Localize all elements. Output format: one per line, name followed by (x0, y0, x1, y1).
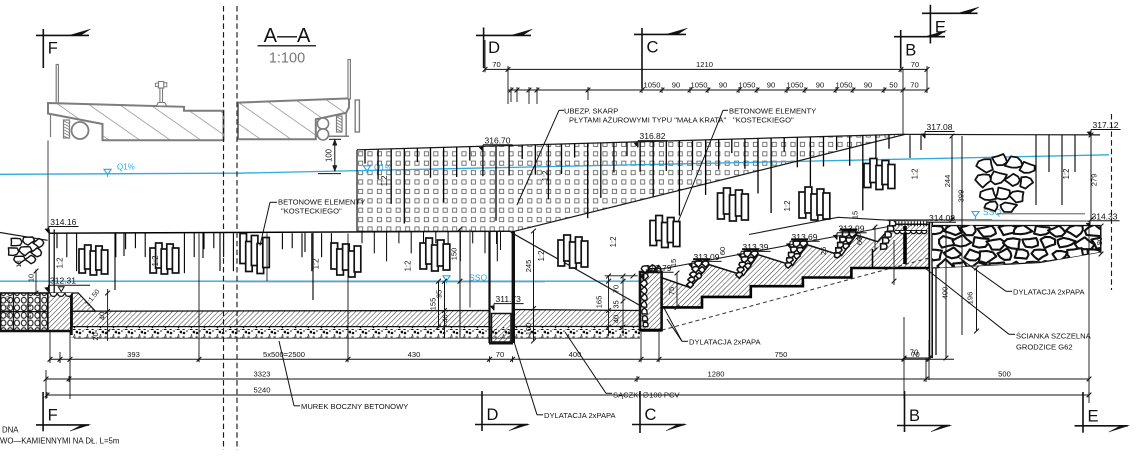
svg-text:1:2: 1:2 (56, 258, 65, 269)
svg-text:1050: 1050 (836, 81, 853, 90)
svg-text:18: 18 (16, 260, 23, 268)
svg-text:WO—KAMIENNYMI NA DŁ. L=5m: WO—KAMIENNYMI NA DŁ. L=5m (0, 437, 119, 446)
svg-text:E: E (935, 19, 946, 37)
svg-text:313.99: 313.99 (839, 223, 865, 233)
svg-text:314.08: 314.08 (929, 213, 955, 223)
svg-text:95: 95 (434, 290, 443, 298)
svg-text:1:2: 1:2 (151, 256, 160, 267)
svg-text:313.69: 313.69 (792, 232, 818, 242)
svg-text:312.79: 312.79 (646, 263, 672, 273)
svg-text:C: C (645, 406, 657, 424)
svg-text:1:2: 1:2 (541, 171, 550, 182)
svg-text:C: C (647, 39, 659, 57)
svg-text:E: E (1088, 408, 1099, 426)
svg-text:245: 245 (524, 260, 533, 273)
svg-text:1:2: 1:2 (609, 237, 618, 248)
svg-text:5x500=2500: 5x500=2500 (263, 350, 305, 359)
svg-text:5240: 5240 (254, 386, 271, 395)
svg-text:∅10-20: ∅10-20 (5, 296, 12, 318)
svg-text:35: 35 (612, 300, 621, 308)
svg-text:1:2: 1:2 (312, 259, 321, 270)
svg-text:1050: 1050 (739, 81, 756, 90)
svg-text:316.82: 316.82 (640, 131, 666, 141)
svg-text:314.33: 314.33 (1092, 211, 1118, 221)
svg-text:90: 90 (719, 81, 727, 90)
svg-text:1:2: 1:2 (1062, 169, 1071, 180)
svg-text:1:1.0: 1:1.0 (26, 304, 33, 319)
svg-text:90: 90 (672, 81, 680, 90)
svg-text:70: 70 (496, 350, 504, 359)
svg-text:B: B (909, 407, 920, 425)
svg-text:"KOSTECKIEGO": "KOSTECKIEGO" (281, 206, 342, 215)
svg-text:1:2: 1:2 (783, 201, 792, 212)
svg-text:100: 100 (524, 323, 533, 336)
svg-text:1:100: 1:100 (269, 51, 305, 67)
svg-text:393: 393 (127, 350, 140, 359)
svg-text:40: 40 (612, 315, 621, 323)
svg-text:1280: 1280 (708, 370, 725, 379)
svg-text:D: D (487, 406, 499, 424)
svg-text:1210: 1210 (696, 60, 713, 69)
svg-text:750: 750 (775, 350, 788, 359)
svg-text:DYLATACJA 2xPAPA: DYLATACJA 2xPAPA (544, 411, 617, 420)
svg-text:244: 244 (943, 175, 952, 188)
svg-text:1:2: 1:2 (380, 176, 389, 187)
svg-text:1:2: 1:2 (911, 169, 920, 180)
svg-text:10: 10 (27, 274, 36, 282)
svg-text:DNA: DNA (2, 426, 19, 435)
svg-text:90: 90 (864, 81, 872, 90)
svg-text:90: 90 (767, 81, 775, 90)
svg-text:40: 40 (854, 233, 863, 241)
svg-text:GRODZICE G62: GRODZICE G62 (1016, 342, 1073, 351)
svg-text:165: 165 (595, 296, 604, 309)
svg-text:400: 400 (941, 287, 950, 300)
svg-text:314.16: 314.16 (50, 217, 76, 227)
svg-text:70: 70 (910, 81, 918, 90)
svg-text:F: F (48, 40, 58, 58)
svg-text:BETONOWE ELEMENTY: BETONOWE ELEMENTY (729, 106, 816, 115)
svg-text:DYLATACJA 2xPAPA: DYLATACJA 2xPAPA (1013, 287, 1086, 296)
svg-text:312.31: 312.31 (50, 276, 76, 286)
svg-text:1050: 1050 (691, 81, 708, 90)
svg-text:D: D (488, 39, 500, 57)
svg-text:1:2: 1:2 (404, 261, 413, 272)
svg-text:317.08: 317.08 (927, 122, 953, 132)
svg-text:279: 279 (1090, 174, 1099, 187)
svg-text:ŚCIANKA SZCZELNA: ŚCIANKA SZCZELNA (1016, 331, 1092, 340)
svg-text:70: 70 (910, 349, 919, 358)
svg-text:SĄCZKI ∅100 PCV: SĄCZKI ∅100 PCV (613, 390, 680, 399)
svg-text:F: F (48, 407, 58, 425)
svg-text:70: 70 (911, 60, 919, 69)
svg-text:150: 150 (450, 248, 459, 261)
svg-text:"KOSTECKIEGO": "KOSTECKIEGO" (733, 115, 794, 124)
svg-text:399: 399 (957, 190, 966, 203)
svg-text:Q1%: Q1% (117, 162, 135, 171)
svg-text:MUREK BOCZNY BETONOWY: MUREK BOCZNY BETONOWY (301, 402, 408, 411)
svg-text:90: 90 (816, 81, 824, 90)
svg-text:155: 155 (428, 298, 437, 311)
svg-text:317.12: 317.12 (1093, 120, 1119, 130)
svg-text:A—A: A—A (264, 25, 311, 47)
svg-text:BETONOWE ELEMENTY: BETONOWE ELEMENTY (278, 198, 365, 207)
svg-text:25: 25 (819, 247, 828, 255)
svg-text:313.09: 313.09 (694, 252, 720, 262)
svg-text:1050: 1050 (644, 81, 661, 90)
svg-text:UBEZP. SKARP: UBEZP. SKARP (564, 106, 618, 115)
svg-text:500: 500 (998, 370, 1011, 379)
svg-text:313.39: 313.39 (743, 242, 769, 252)
svg-text:15: 15 (851, 211, 860, 219)
svg-text:B: B (905, 42, 916, 60)
svg-text:SSQ: SSQ (469, 272, 487, 282)
svg-text:430: 430 (408, 350, 421, 359)
svg-text:50: 50 (889, 81, 897, 90)
svg-text:100: 100 (325, 148, 334, 162)
svg-text:DYLATACJA 2xPAPA: DYLATACJA 2xPAPA (689, 337, 762, 346)
svg-text:70: 70 (492, 60, 500, 69)
svg-text:196: 196 (966, 292, 975, 305)
svg-text:1050: 1050 (787, 81, 804, 90)
svg-text:75: 75 (667, 287, 676, 295)
svg-text:80: 80 (1095, 237, 1104, 245)
svg-text:311.73: 311.73 (496, 294, 522, 304)
svg-text:3323: 3323 (254, 370, 271, 379)
svg-text:70: 70 (612, 285, 621, 293)
svg-text:40: 40 (441, 314, 450, 322)
svg-text:20: 20 (91, 332, 100, 340)
svg-text:316.70: 316.70 (485, 135, 511, 145)
svg-text:Q1%: Q1% (374, 163, 392, 172)
svg-text:PŁYTAMI AŻUROWYMI TYPU "MAŁA K: PŁYTAMI AŻUROWYMI TYPU "MAŁA KRATA" (569, 115, 726, 124)
svg-text:1:2: 1:2 (537, 251, 546, 262)
